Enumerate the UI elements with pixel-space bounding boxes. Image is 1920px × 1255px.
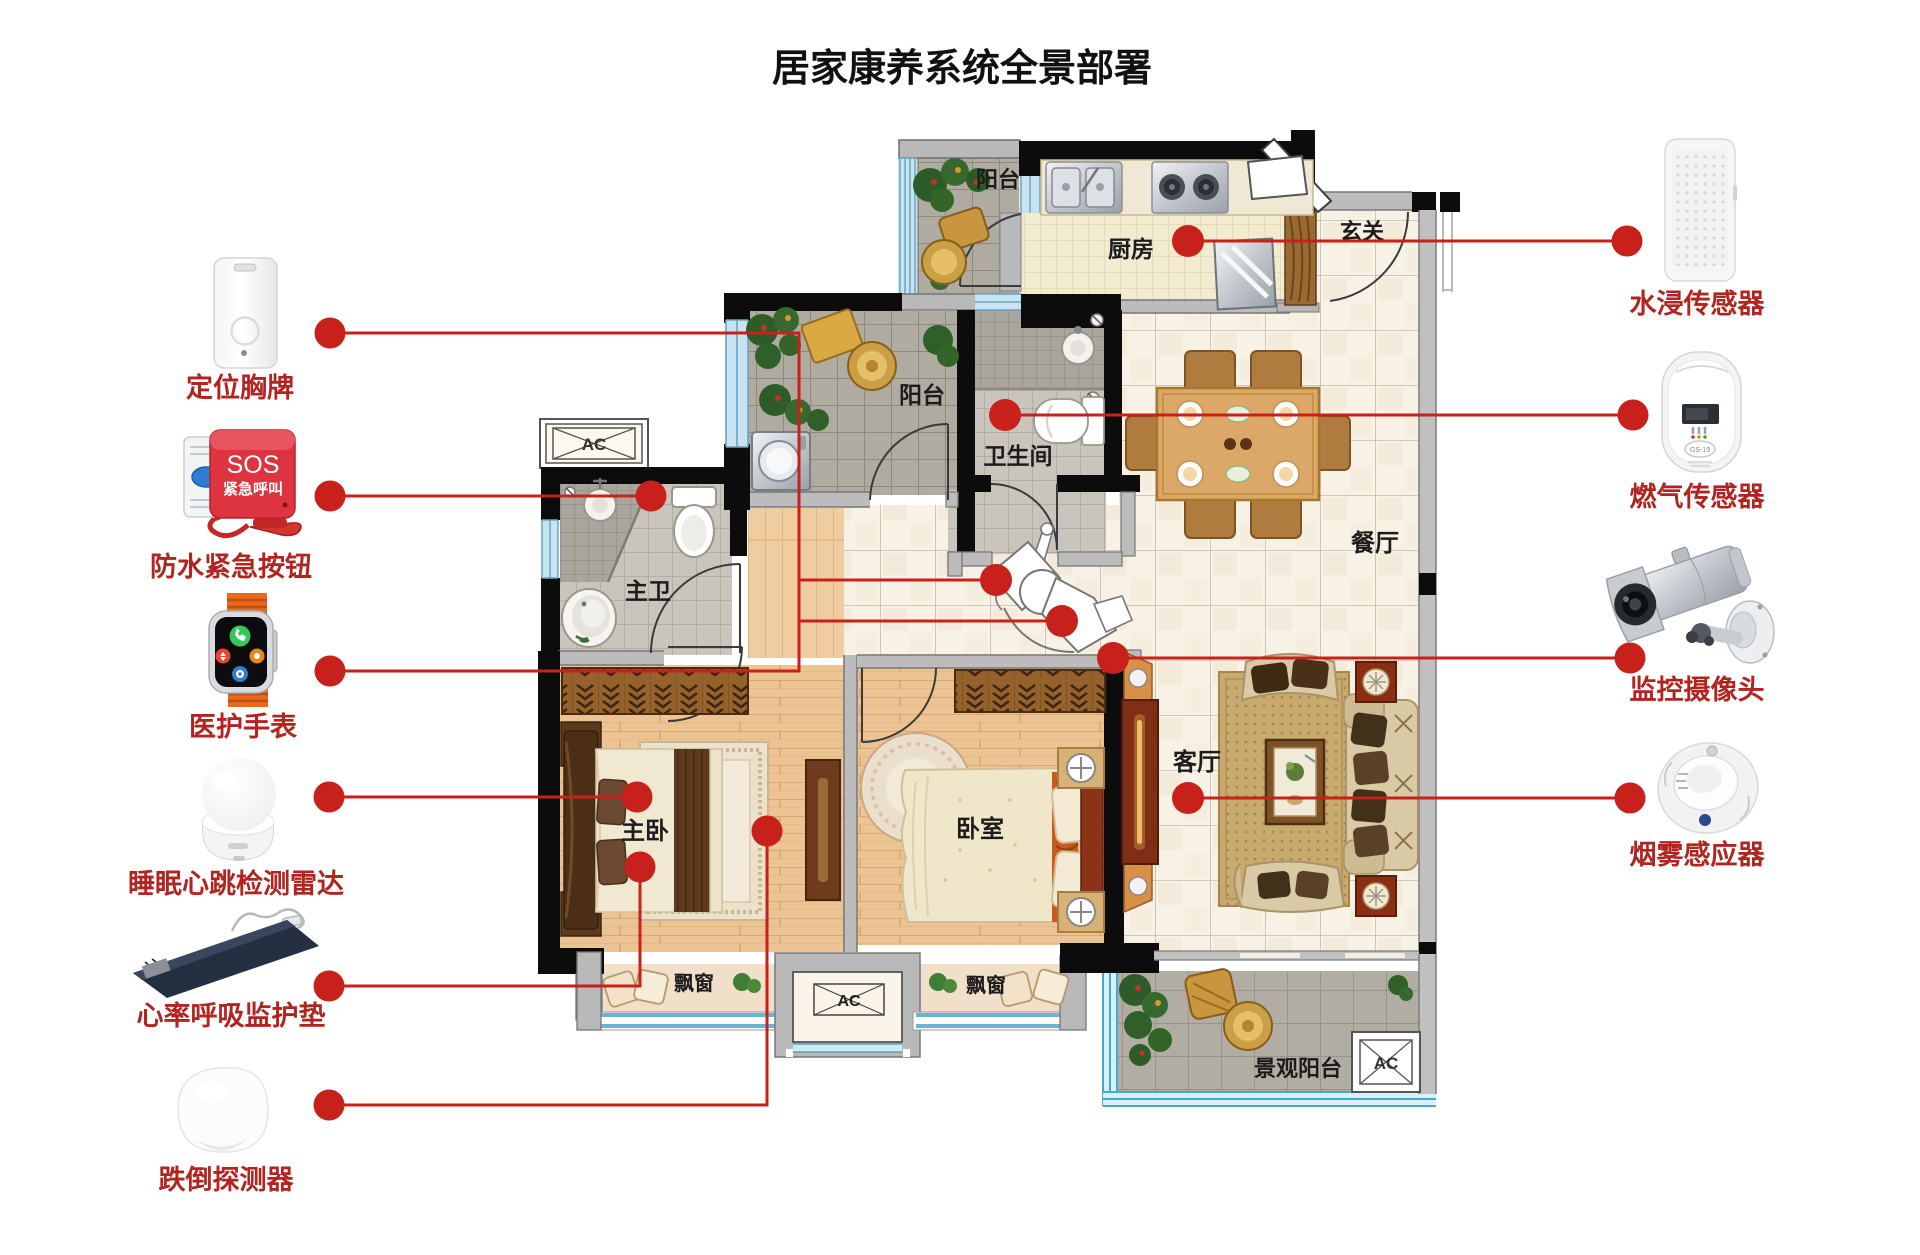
- svg-text:水浸传感器: 水浸传感器: [1630, 288, 1766, 319]
- svg-text:烟雾感应器: 烟雾感应器: [1630, 839, 1766, 870]
- svg-text:医护手表: 医护手表: [189, 712, 297, 742]
- svg-text:阳台: 阳台: [899, 382, 945, 408]
- svg-text:监控摄像头: 监控摄像头: [1630, 675, 1765, 705]
- svg-text:心率呼吸监护垫: 心率呼吸监护垫: [137, 1000, 326, 1031]
- svg-text:AC: AC: [837, 993, 861, 1010]
- svg-text:防水紧急按钮: 防水紧急按钮: [150, 551, 312, 582]
- svg-text:跌倒探测器: 跌倒探测器: [159, 1165, 295, 1195]
- svg-text:紧急呼叫: 紧急呼叫: [223, 480, 283, 498]
- svg-text:AC: AC: [582, 435, 607, 454]
- svg-text:卫生间: 卫生间: [984, 443, 1053, 469]
- svg-text:阳台: 阳台: [976, 167, 1020, 192]
- svg-text:主卧: 主卧: [621, 818, 669, 845]
- svg-text:主卫: 主卫: [625, 578, 671, 604]
- svg-text:飘窗: 飘窗: [966, 973, 1006, 997]
- svg-text:餐厅: 餐厅: [1351, 530, 1399, 557]
- svg-text:睡眠心跳检测雷达: 睡眠心跳检测雷达: [128, 868, 344, 899]
- svg-text:厨房: 厨房: [1108, 236, 1154, 262]
- svg-text:居家康养系统全景部署: 居家康养系统全景部署: [772, 47, 1152, 90]
- svg-text:景观阳台: 景观阳台: [1254, 1056, 1342, 1081]
- svg-text:GS-19: GS-19: [1690, 447, 1710, 454]
- svg-text:AC: AC: [1374, 1054, 1399, 1073]
- svg-text:SOS: SOS: [227, 451, 280, 479]
- svg-text:客厅: 客厅: [1173, 748, 1221, 776]
- svg-text:定位胸牌: 定位胸牌: [186, 372, 294, 403]
- svg-text:卧室: 卧室: [956, 815, 1004, 843]
- svg-text:燃气传感器: 燃气传感器: [1630, 481, 1766, 512]
- svg-text:飘窗: 飘窗: [674, 971, 714, 995]
